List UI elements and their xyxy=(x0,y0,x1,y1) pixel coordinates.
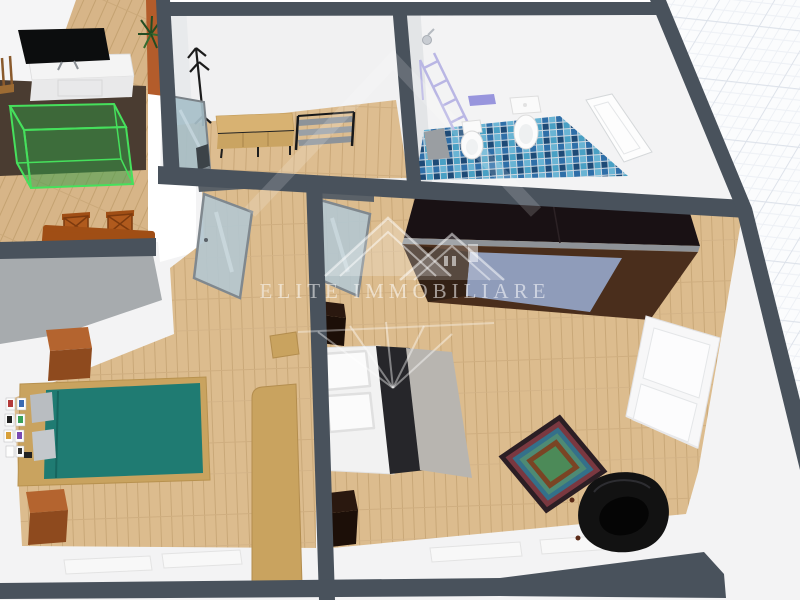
pillow xyxy=(322,351,370,390)
nightstand-cube-bottom[interactable] xyxy=(26,489,68,545)
watermark-text: ELITE IMMOBILIARE xyxy=(260,279,551,303)
desk[interactable] xyxy=(252,384,302,586)
floorplan-3d-viewport: ELITE IMMOBILIARE xyxy=(0,0,800,600)
pillow xyxy=(326,393,374,432)
pillow xyxy=(32,429,56,461)
top-wall xyxy=(160,2,665,16)
room-living xyxy=(0,0,166,258)
watermark-chimney xyxy=(468,244,478,262)
small-bedroom-glass-door[interactable] xyxy=(194,194,252,298)
wall-shelf[interactable] xyxy=(270,332,299,358)
selection-box-top xyxy=(10,104,126,130)
nightstand-cube-top[interactable] xyxy=(46,327,92,381)
single-bed-teal[interactable] xyxy=(18,377,210,486)
bath-mat[interactable] xyxy=(468,94,496,106)
room-hallway xyxy=(160,3,410,182)
selection-box xyxy=(10,104,133,188)
double-bed[interactable] xyxy=(314,346,472,478)
selection-box-front xyxy=(24,127,133,188)
floorplan-scene: ELITE IMMOBILIARE xyxy=(0,0,800,600)
pillow xyxy=(30,392,54,423)
